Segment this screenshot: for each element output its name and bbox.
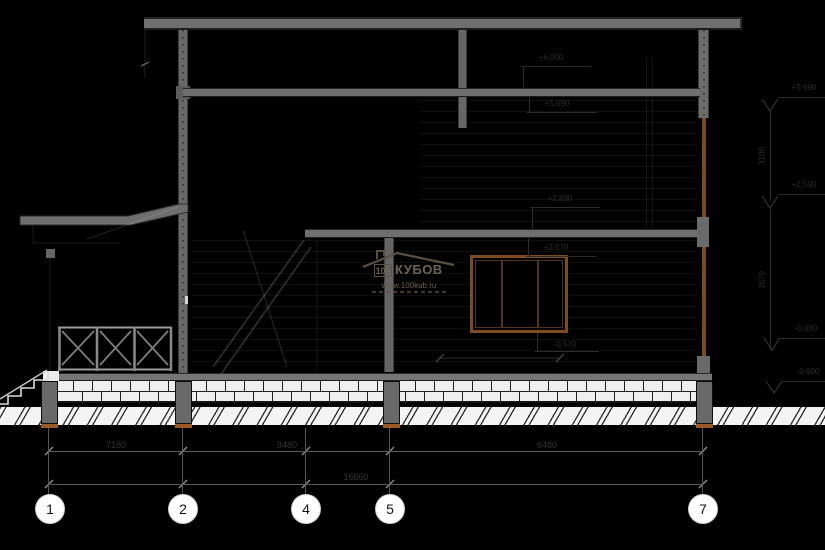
window-band-grid7-lower xyxy=(702,247,706,356)
foundation-pier-5 xyxy=(383,381,400,424)
first-floor-slab xyxy=(305,229,700,238)
railing-cross-braces xyxy=(62,331,168,365)
wall-grid7-slab-node xyxy=(697,217,709,247)
column-grid7-upper xyxy=(698,30,709,118)
grid-leader-4 xyxy=(305,428,306,496)
level-text: +5,690 xyxy=(545,99,570,108)
level-text-right: +2,590 xyxy=(792,180,817,189)
entry-canopy xyxy=(20,204,188,372)
level-mark-arrows xyxy=(762,99,782,393)
grid-bubble-2: 2 xyxy=(168,494,198,524)
grid-bubble-4: 4 xyxy=(291,494,321,524)
window-band-grid7-upper xyxy=(702,118,706,217)
grid-bubble-7: 7 xyxy=(688,494,718,524)
watermark-brand: КУБОВ xyxy=(395,262,443,277)
level-shelf xyxy=(527,112,597,113)
column-hatch-ticks xyxy=(703,30,705,118)
stair-landing xyxy=(43,371,59,381)
level-text: +2,890 xyxy=(548,194,573,203)
level-shelf xyxy=(778,97,825,98)
level-tick xyxy=(532,207,533,229)
window-frame xyxy=(470,255,568,333)
sill-tick xyxy=(537,333,538,351)
grid-leader-7 xyxy=(702,428,703,496)
interior-wall-line xyxy=(646,58,647,229)
vertical-dim-text: 2670 xyxy=(758,271,767,289)
foundation-pier-2 xyxy=(175,381,192,424)
dimension-line-row2 xyxy=(49,484,703,485)
dimension-line-row1 xyxy=(49,451,703,452)
dim-text: 6480 xyxy=(537,440,557,450)
terrace-railing xyxy=(58,327,172,371)
footing-pad-7 xyxy=(696,424,713,428)
grid-leader-5 xyxy=(389,428,390,496)
sill-shelf xyxy=(535,351,599,352)
watermark-number: 100 xyxy=(374,264,392,277)
level-tick xyxy=(528,238,529,256)
level-shelf xyxy=(521,66,591,67)
vertical-dim-line xyxy=(770,208,771,351)
ground-floor-slab xyxy=(55,373,712,381)
grid-leader-1 xyxy=(48,428,49,496)
watermark-url: www.100kub.ru xyxy=(382,281,437,290)
level-shelf xyxy=(780,338,825,339)
vertical-dim-text: 3100 xyxy=(758,147,767,165)
window-sill-level-text: -0,570 xyxy=(554,340,577,349)
footing-pad-2 xyxy=(175,424,192,428)
level-shelf xyxy=(530,207,600,208)
grid-bubble-5: 5 xyxy=(375,494,405,524)
dim-text: 9480 xyxy=(277,440,297,450)
dim-text: 16660 xyxy=(343,472,368,482)
dimension-ticks xyxy=(45,447,707,488)
vertical-dim-line xyxy=(770,111,771,201)
foundation-pier-7 xyxy=(696,381,713,424)
window-mullion xyxy=(501,261,503,327)
column-hatch-ticks xyxy=(182,30,184,373)
level-tick xyxy=(529,97,530,112)
window-inner-frame xyxy=(475,260,563,328)
level-text-right: -0,080 xyxy=(795,324,818,333)
interior-wall-line xyxy=(652,58,653,229)
foundation-pier-1 xyxy=(41,381,58,424)
footing-pad-5 xyxy=(383,424,400,428)
level-text-right: -0,600 xyxy=(797,367,820,376)
grid-leader-2 xyxy=(182,428,183,496)
level-text: +6,000 xyxy=(539,53,564,62)
level-shelf xyxy=(526,256,596,257)
window-mullion xyxy=(537,261,539,327)
level-text: +2,670 xyxy=(544,243,569,252)
column-upper-mid xyxy=(458,30,467,128)
column-mid-lower xyxy=(384,238,394,372)
second-floor-slab xyxy=(183,88,700,97)
level-shelf xyxy=(782,381,825,382)
footing-pad-1 xyxy=(41,424,58,428)
level-text-right: +5,690 xyxy=(792,83,817,92)
roof-slab xyxy=(144,17,742,30)
section-drawing-canvas: 7180 9480 6480 16660 -0,570 +6,000 +5,69… xyxy=(0,0,825,550)
level-tick xyxy=(523,66,524,87)
wall-course-texture-lower xyxy=(192,240,697,372)
level-shelf xyxy=(778,194,825,195)
grid-bubble-1: 1 xyxy=(35,494,65,524)
column-grid2 xyxy=(178,30,188,373)
dim-text: 7180 xyxy=(106,440,126,450)
